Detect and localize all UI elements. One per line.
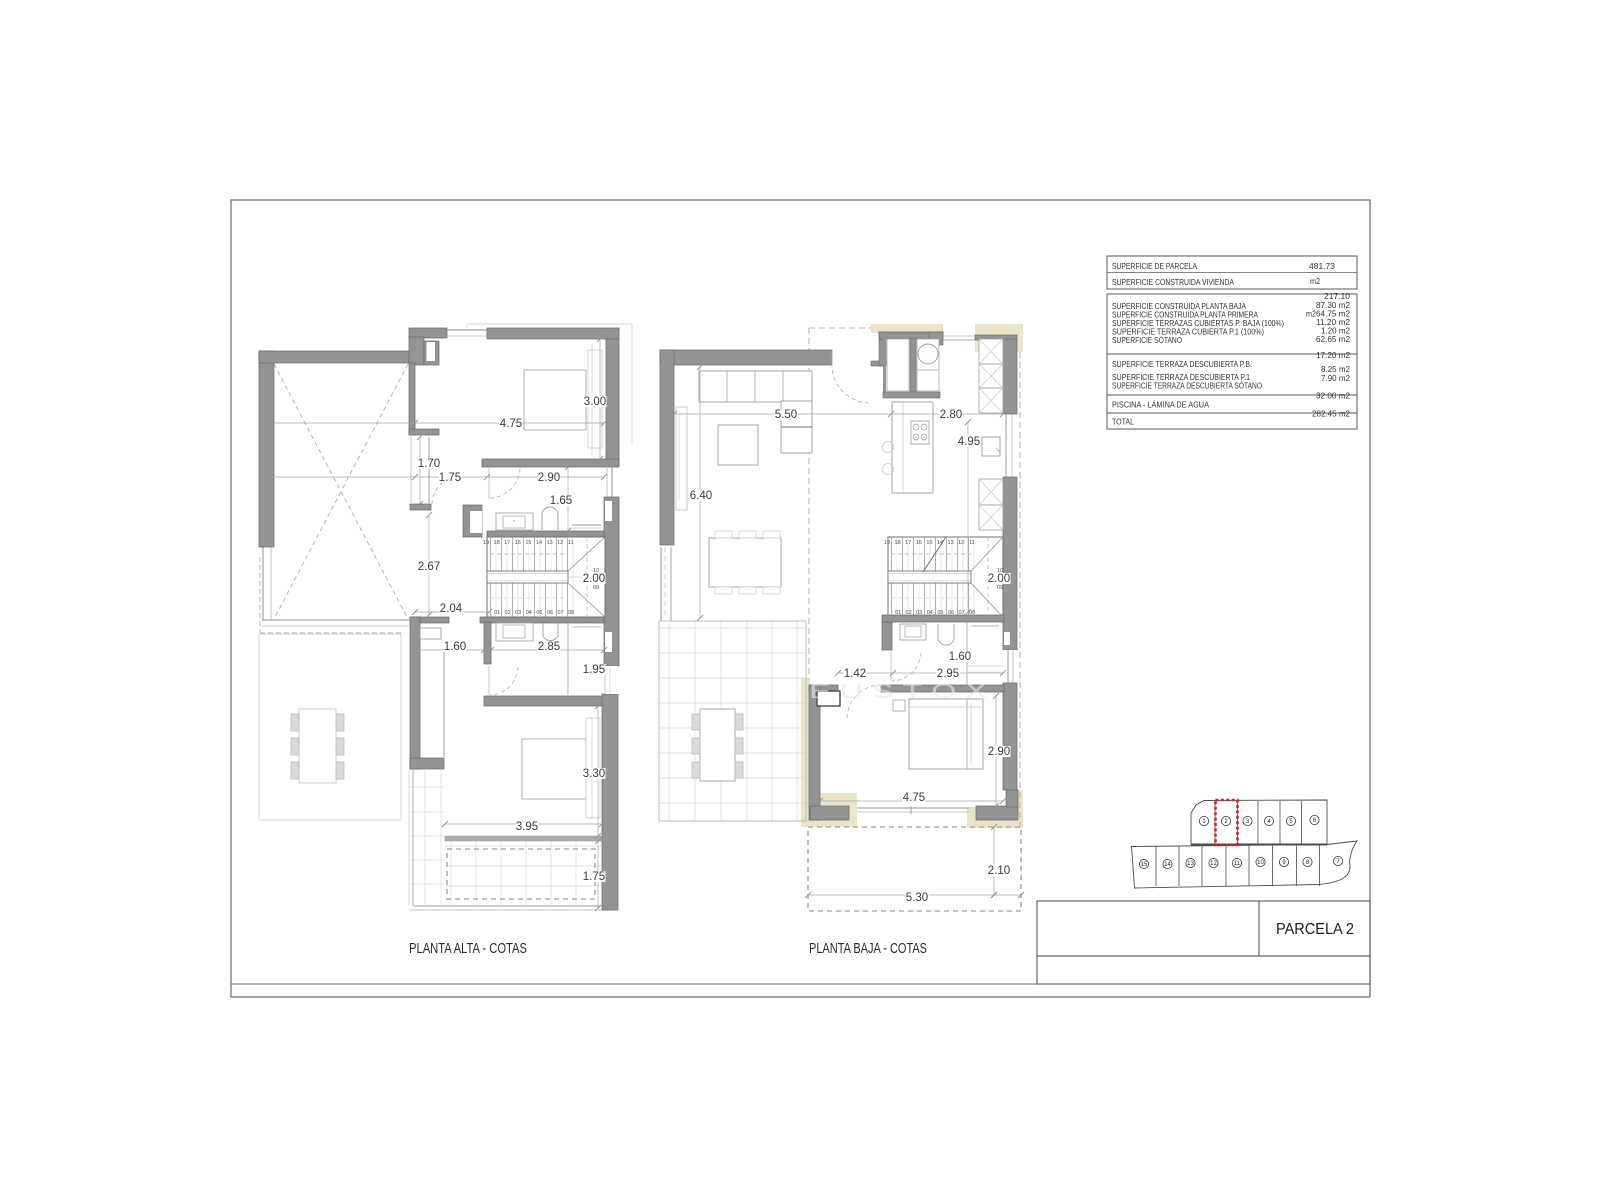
svg-text:18: 18 [895,540,901,546]
svg-text:12: 12 [1210,861,1217,867]
svg-text:17.20 m2: 17.20 m2 [1316,350,1350,360]
svg-text:7.90 m2: 7.90 m2 [1321,373,1350,383]
svg-text:09: 09 [997,585,1003,591]
svg-text:11: 11 [1234,861,1241,867]
svg-text:09: 09 [593,585,599,591]
svg-text:1.42: 1.42 [844,668,866,680]
svg-text:2.10: 2.10 [988,865,1010,877]
svg-text:14: 14 [536,540,542,546]
svg-text:1.60: 1.60 [949,651,971,663]
svg-text:5.30: 5.30 [906,892,928,904]
svg-text:13: 13 [1187,861,1194,867]
svg-text:15: 15 [525,540,531,546]
svg-text:SUPERFICIE TERRAZA DESCUBIERTA: SUPERFICIE TERRAZA DESCUBIERTA P.B. [1112,359,1252,369]
svg-text:1.75: 1.75 [583,871,605,883]
svg-text:1.75: 1.75 [439,472,461,484]
svg-text:12: 12 [958,540,964,546]
svg-text:SUPERFICIE SÓTANO: SUPERFICIE SÓTANO [1112,335,1182,345]
svg-text:PARCELA 2: PARCELA 2 [1276,921,1354,938]
svg-text:3.30: 3.30 [583,768,605,780]
svg-text:2.00: 2.00 [988,573,1010,585]
svg-text:SUPERFICIE TERRAZA DESCUBIERTA: SUPERFICIE TERRAZA DESCUBIERTA SÓTANO [1112,381,1262,391]
svg-text:4.75: 4.75 [500,418,522,430]
svg-text:2.80: 2.80 [940,409,962,421]
svg-text:TOTAL: TOTAL [1112,417,1134,427]
svg-text:PLANTA BAJA - COTAS: PLANTA BAJA - COTAS [809,940,927,957]
svg-text:1.60: 1.60 [444,641,466,653]
svg-text:19: 19 [884,540,890,546]
svg-text:07: 07 [558,610,564,616]
svg-text:62.65 m2: 62.65 m2 [1316,334,1350,344]
svg-text:1.65: 1.65 [550,495,572,507]
svg-text:282.45 m2: 282.45 m2 [1312,409,1350,419]
svg-text:11: 11 [969,540,975,546]
svg-text:2.85: 2.85 [538,641,560,653]
svg-text:11: 11 [568,540,574,546]
svg-text:19: 19 [483,540,489,546]
svg-text:01: 01 [494,610,500,616]
svg-text:12: 12 [557,540,563,546]
svg-text:13: 13 [948,540,954,546]
svg-text:17: 17 [905,540,911,546]
svg-text:2.90: 2.90 [988,746,1010,758]
svg-text:6.40: 6.40 [690,490,712,502]
svg-text:SUPERFICIE CONSTRUIDA VIVIENDA: SUPERFICIE CONSTRUIDA VIVIENDA [1112,277,1234,287]
svg-text:17: 17 [504,540,510,546]
svg-text:16: 16 [515,540,521,546]
svg-text:04: 04 [526,610,532,616]
svg-text:14: 14 [1164,862,1171,868]
svg-text:02: 02 [505,610,511,616]
svg-text:3.95: 3.95 [516,821,538,833]
svg-text:3.00: 3.00 [584,396,606,408]
svg-text:SUPERFICIE DE PARCELA: SUPERFICIE DE PARCELA [1112,261,1197,271]
svg-text:10: 10 [1257,860,1264,866]
svg-text:PLANTA ALTA - COTAS: PLANTA ALTA - COTAS [409,940,527,957]
svg-text:2.90: 2.90 [538,472,560,484]
svg-text:4.75: 4.75 [903,792,925,804]
svg-text:E U S T O X: E U S T O X [809,681,987,703]
svg-text:1.70: 1.70 [418,458,440,470]
svg-text:08: 08 [568,610,574,616]
svg-text:15: 15 [926,540,932,546]
svg-text:14: 14 [937,540,943,546]
svg-text:06: 06 [547,610,553,616]
svg-text:32.00 m2: 32.00 m2 [1316,391,1350,401]
svg-text:1.95: 1.95 [583,664,605,676]
svg-text:4.95: 4.95 [958,436,980,448]
svg-text:18: 18 [494,540,500,546]
svg-text:5.50: 5.50 [775,409,797,421]
svg-text:2.04: 2.04 [440,603,463,615]
svg-text:05: 05 [536,610,542,616]
svg-text:2.95: 2.95 [937,668,959,680]
svg-text:15: 15 [1141,862,1148,868]
svg-text:m2: m2 [1310,276,1320,286]
svg-text:13: 13 [547,540,553,546]
svg-text:481.73: 481.73 [1309,261,1335,271]
svg-text:16: 16 [916,540,922,546]
svg-text:2.00: 2.00 [583,573,605,585]
svg-text:m2: m2 [1306,309,1316,319]
svg-text:03: 03 [515,610,521,616]
svg-text:2.67: 2.67 [418,561,440,573]
svg-text:PISCINA - LÁMINA DE AGUA: PISCINA - LÁMINA DE AGUA [1112,400,1209,410]
